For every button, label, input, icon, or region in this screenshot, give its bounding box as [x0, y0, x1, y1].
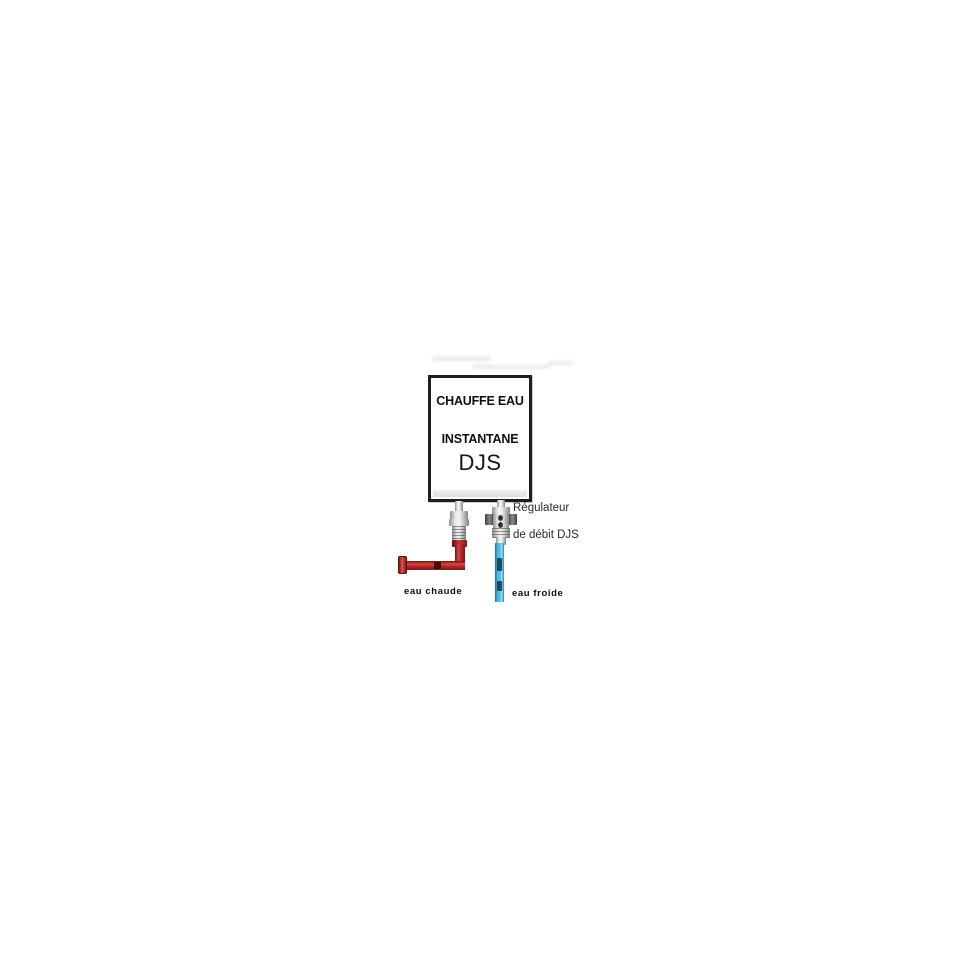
- regulator-body-port: [498, 515, 503, 521]
- hot-fitting-hex: [450, 511, 468, 519]
- heater-title-line2: INSTANTANE: [442, 432, 519, 446]
- heater-title: CHAUFFE EAU INSTANTANE: [431, 392, 529, 449]
- heater-model: DJS: [431, 450, 529, 476]
- smudge-artifact: [472, 365, 550, 369]
- heater-bottom-strip: [433, 490, 527, 497]
- plumbing-diagram: CHAUFFE EAU INSTANTANE DJS Régu: [0, 0, 956, 956]
- hot-fitting-flange: [449, 519, 469, 526]
- hot-pipe-end-flange: [398, 556, 407, 574]
- regulator-label-line1: Régulateur: [513, 502, 569, 514]
- smudge-artifact: [548, 361, 574, 365]
- regulator-label-line2: de débit DJS: [513, 529, 579, 541]
- cold-pipe-mark: [497, 558, 502, 571]
- cold-pipe-vertical: [495, 543, 504, 602]
- heater-title-line1: CHAUFFE EAU: [436, 394, 523, 408]
- hot-pipe-joint-mark: [434, 562, 441, 569]
- cold-water-label: eau froide: [512, 588, 563, 599]
- cold-pipe-mark: [497, 581, 502, 591]
- smudge-artifact: [432, 356, 490, 361]
- hot-fitting-ribbed-nut: [452, 526, 466, 540]
- hot-water-label: eau chaude: [404, 586, 462, 597]
- regulator-label: Régulateur de débit DJS: [513, 502, 579, 543]
- water-heater-box: CHAUFFE EAU INSTANTANE DJS: [428, 375, 532, 502]
